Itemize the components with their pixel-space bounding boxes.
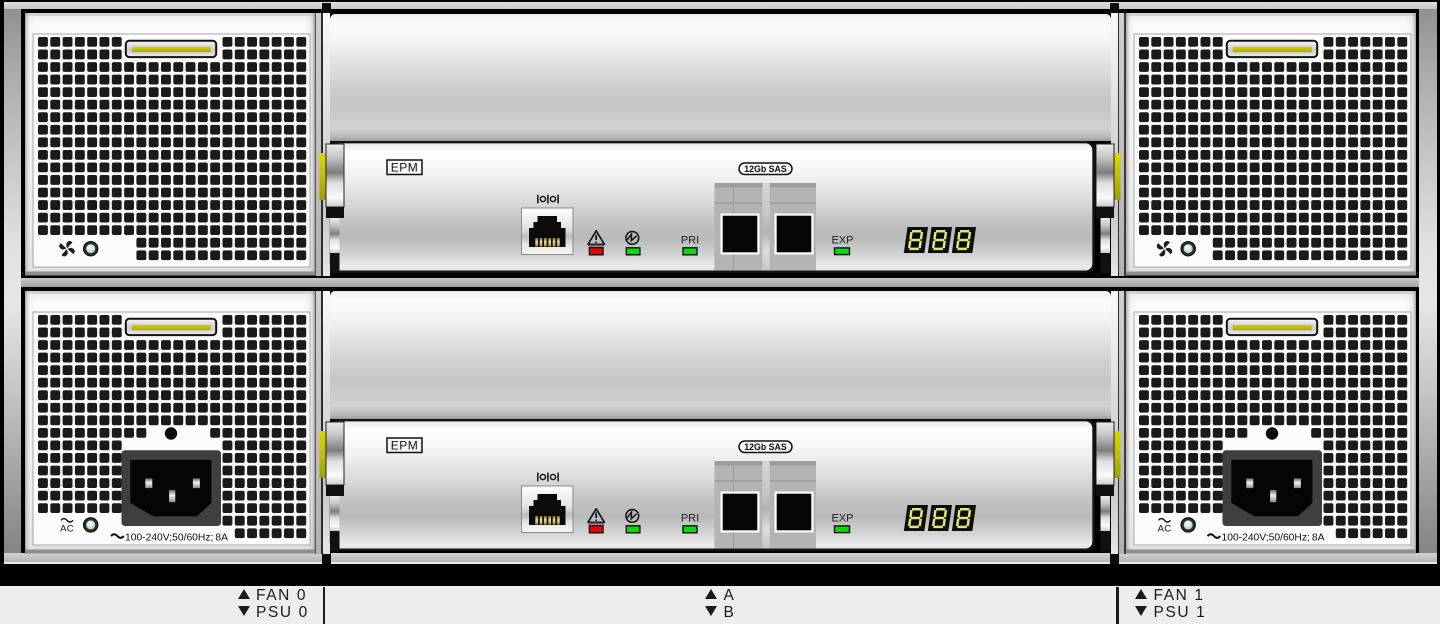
svg-text:12Gb SAS: 12Gb SAS: [744, 164, 787, 174]
svg-text:EXP: EXP: [831, 235, 853, 247]
svg-text:EPM: EPM: [391, 161, 419, 175]
svg-text:AC: AC: [60, 523, 74, 534]
svg-text:AC: AC: [1157, 523, 1171, 534]
svg-text:PRI: PRI: [681, 235, 699, 247]
svg-text:12Gb SAS: 12Gb SAS: [744, 442, 787, 452]
svg-text:EPM: EPM: [391, 438, 419, 452]
svg-text:100-240V;50/60Hz; 8A: 100-240V;50/60Hz; 8A: [1221, 532, 1324, 543]
svg-text:PRI: PRI: [681, 512, 699, 524]
svg-text:100-240V;50/60Hz; 8A: 100-240V;50/60Hz; 8A: [125, 532, 228, 543]
svg-text:EXP: EXP: [831, 512, 853, 524]
